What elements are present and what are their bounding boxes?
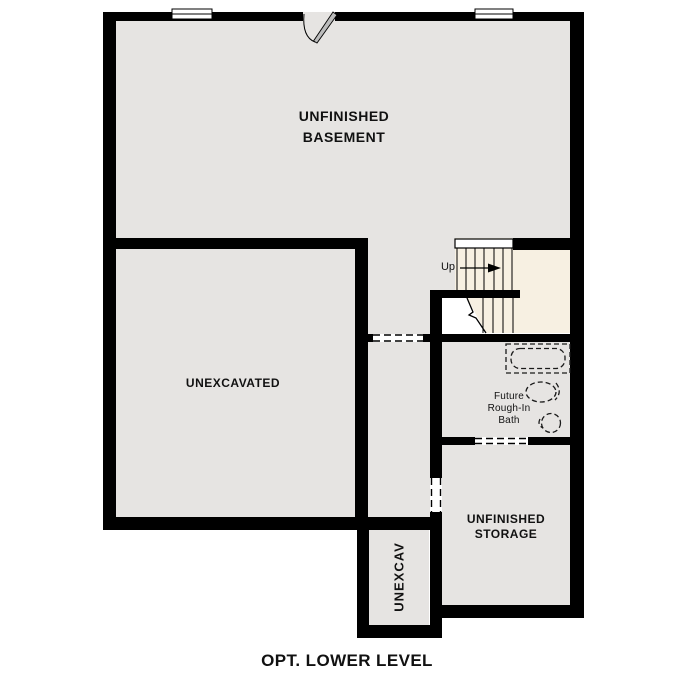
wall-stair-mid [430,290,520,298]
wall-left [103,12,116,530]
corridor-floor [368,238,430,517]
storage-label-line2: STORAGE [467,527,545,542]
future-bath-label-line1: Future [488,391,531,403]
floor-plan-drawing [0,0,687,687]
basement-label: UNFINISHED BASEMENT [299,106,390,148]
future-bath-label: Future Rough-In Bath [488,391,531,427]
wall-right [570,12,584,618]
storage-label: UNFINISHED STORAGE [467,512,545,542]
floor-plan: UNFINISHED BASEMENT UNEXCAVATED Future R… [0,0,687,687]
storage-label-line1: UNFINISHED [467,512,545,527]
future-bath-label-line3: Bath [488,415,531,427]
wall-stair-storage-left [430,290,442,638]
wall-storage-bottom [430,605,584,618]
plan-title: OPT. LOWER LEVEL [261,651,433,671]
wall-unexcavated-right [355,238,368,530]
unexcav-label: UNEXCAV [392,542,407,612]
unexcavated-label: UNEXCAVATED [186,376,280,390]
stair-landing-floor [513,250,570,333]
wall-bottom-left [103,517,442,530]
basement-label-line2: BASEMENT [299,127,390,148]
basement-label-line1: UNFINISHED [299,106,390,127]
stair-header-bar [455,239,513,248]
wall-unexcav-bottom [357,625,442,638]
wall-basement-bottom [103,238,368,249]
future-bath-label-line2: Rough-In [488,403,531,415]
wall-stair-header [513,238,584,250]
stairs-up-label: Up [441,261,455,273]
wall-unexcav-left [357,517,369,638]
